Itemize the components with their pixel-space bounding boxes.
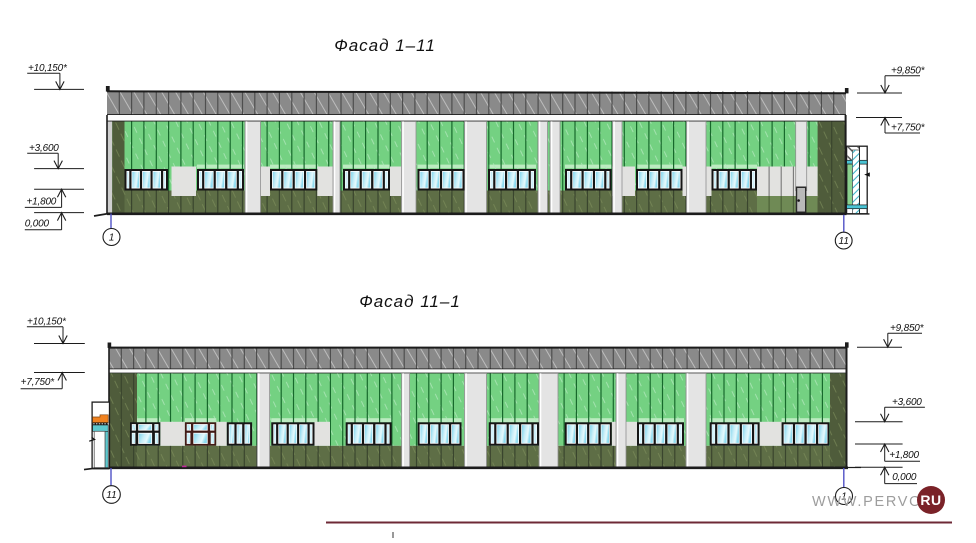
svg-text:1: 1 bbox=[109, 232, 115, 243]
svg-text:Фасад 1–11: Фасад 1–11 bbox=[334, 36, 436, 55]
svg-text:11: 11 bbox=[106, 490, 116, 501]
svg-text:+7,750*: +7,750* bbox=[21, 377, 56, 388]
svg-text:+3,600: +3,600 bbox=[29, 143, 59, 154]
svg-text:0,000: 0,000 bbox=[892, 472, 917, 483]
svg-text:+10,150*: +10,150* bbox=[27, 317, 67, 328]
svg-text:+9,850*: +9,850* bbox=[890, 323, 925, 334]
svg-text:Фасад 11–1: Фасад 11–1 bbox=[359, 292, 461, 311]
svg-text:+1,800: +1,800 bbox=[27, 197, 57, 208]
svg-text:+9,850*: +9,850* bbox=[891, 66, 926, 77]
svg-text:RU: RU bbox=[920, 492, 941, 508]
svg-text:WWW.PERVO.: WWW.PERVO. bbox=[812, 494, 928, 510]
svg-text:+3,600: +3,600 bbox=[892, 397, 922, 408]
svg-text:+1,800: +1,800 bbox=[889, 450, 919, 461]
svg-text:+10,150*: +10,150* bbox=[28, 63, 68, 74]
svg-text:+7,750*: +7,750* bbox=[891, 123, 926, 134]
svg-text:11: 11 bbox=[839, 236, 849, 247]
svg-text:0,000: 0,000 bbox=[25, 219, 50, 230]
